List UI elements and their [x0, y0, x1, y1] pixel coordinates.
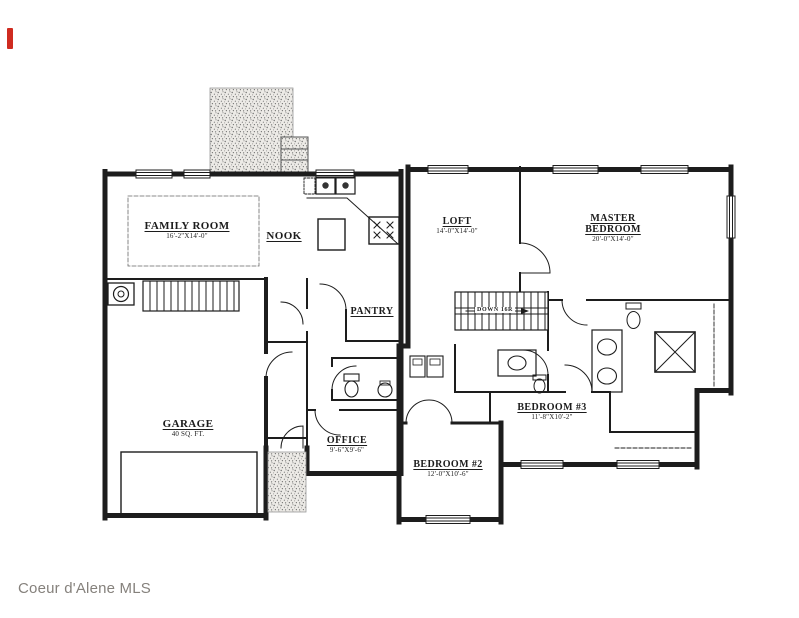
room-label-bedroom-3: BEDROOM #3 11'-8"X10'-2" — [517, 402, 586, 422]
room-dims: 14'-0"X14'-0" — [436, 228, 478, 236]
water-heater-icon — [108, 283, 134, 305]
room-name: GARAGE — [163, 418, 214, 430]
toilet-icon — [344, 374, 359, 397]
floor-plan-sheet: FAMILY ROOM 16'-2"X14'-0" NOOK PANTRY GA… — [0, 0, 799, 618]
red-scan-mark — [7, 28, 13, 49]
range-icon — [369, 217, 399, 244]
room-dims: 16'-2"X14'-0" — [145, 233, 230, 241]
room-name: LOFT — [436, 216, 478, 227]
garage-door-panel — [121, 452, 257, 514]
porch-hatch — [268, 452, 306, 512]
room-dims: 11'-8"X10'-2" — [517, 414, 586, 422]
room-name: BEDROOM #3 — [517, 402, 586, 413]
room-area: 40 SQ. FT. — [163, 431, 214, 439]
room-label-office: OFFICE 9'-6"X9'-6" — [327, 435, 367, 455]
room-label-family-room: FAMILY ROOM 16'-2"X14'-0" — [145, 220, 230, 241]
room-label-pantry: PANTRY — [351, 306, 394, 317]
counter-edge — [307, 198, 398, 244]
room-name: PANTRY — [351, 306, 394, 317]
room-name: OFFICE — [327, 435, 367, 446]
kitchen-island — [318, 219, 345, 250]
room-name: MASTER BEDROOM — [572, 213, 654, 235]
shower-icon — [655, 332, 695, 372]
double-vanity-icon — [592, 330, 622, 392]
dryer-icon — [427, 356, 443, 377]
kitchen-sink-icon — [304, 177, 355, 194]
floor-plan-linework — [0, 0, 799, 618]
room-label-loft: LOFT 14'-0"X14'-0" — [436, 216, 478, 236]
washer-icon — [410, 356, 425, 377]
toilet-icon — [533, 375, 546, 393]
room-dims: 9'-6"X9'-6" — [327, 447, 367, 455]
stairs-icon — [143, 281, 239, 311]
room-dims: 20'-0"X14'-0" — [572, 236, 654, 244]
room-label-garage: GARAGE 40 SQ. FT. — [163, 418, 214, 439]
room-label-master-bedroom: MASTER BEDROOM 20'-0"X14'-0" — [572, 213, 654, 244]
toilet-icon — [626, 303, 641, 329]
room-name: BEDROOM #2 — [413, 459, 482, 470]
room-name: FAMILY ROOM — [145, 220, 230, 232]
room-label-bedroom-2: BEDROOM #2 12'-0"X10'-6" — [413, 459, 482, 479]
patio-hatch — [210, 88, 308, 172]
vanity-sink-icon — [498, 350, 536, 376]
stairs-direction-label: DOWN 16R — [475, 307, 515, 313]
mls-watermark: Coeur d'Alene MLS — [18, 580, 151, 597]
door-arc — [266, 284, 356, 448]
room-dims: 12'-0"X10'-6" — [413, 471, 482, 479]
room-label-nook: NOOK — [266, 230, 301, 242]
room-name: NOOK — [266, 230, 301, 242]
pedestal-sink-icon — [378, 381, 392, 397]
door-arc — [406, 243, 592, 423]
